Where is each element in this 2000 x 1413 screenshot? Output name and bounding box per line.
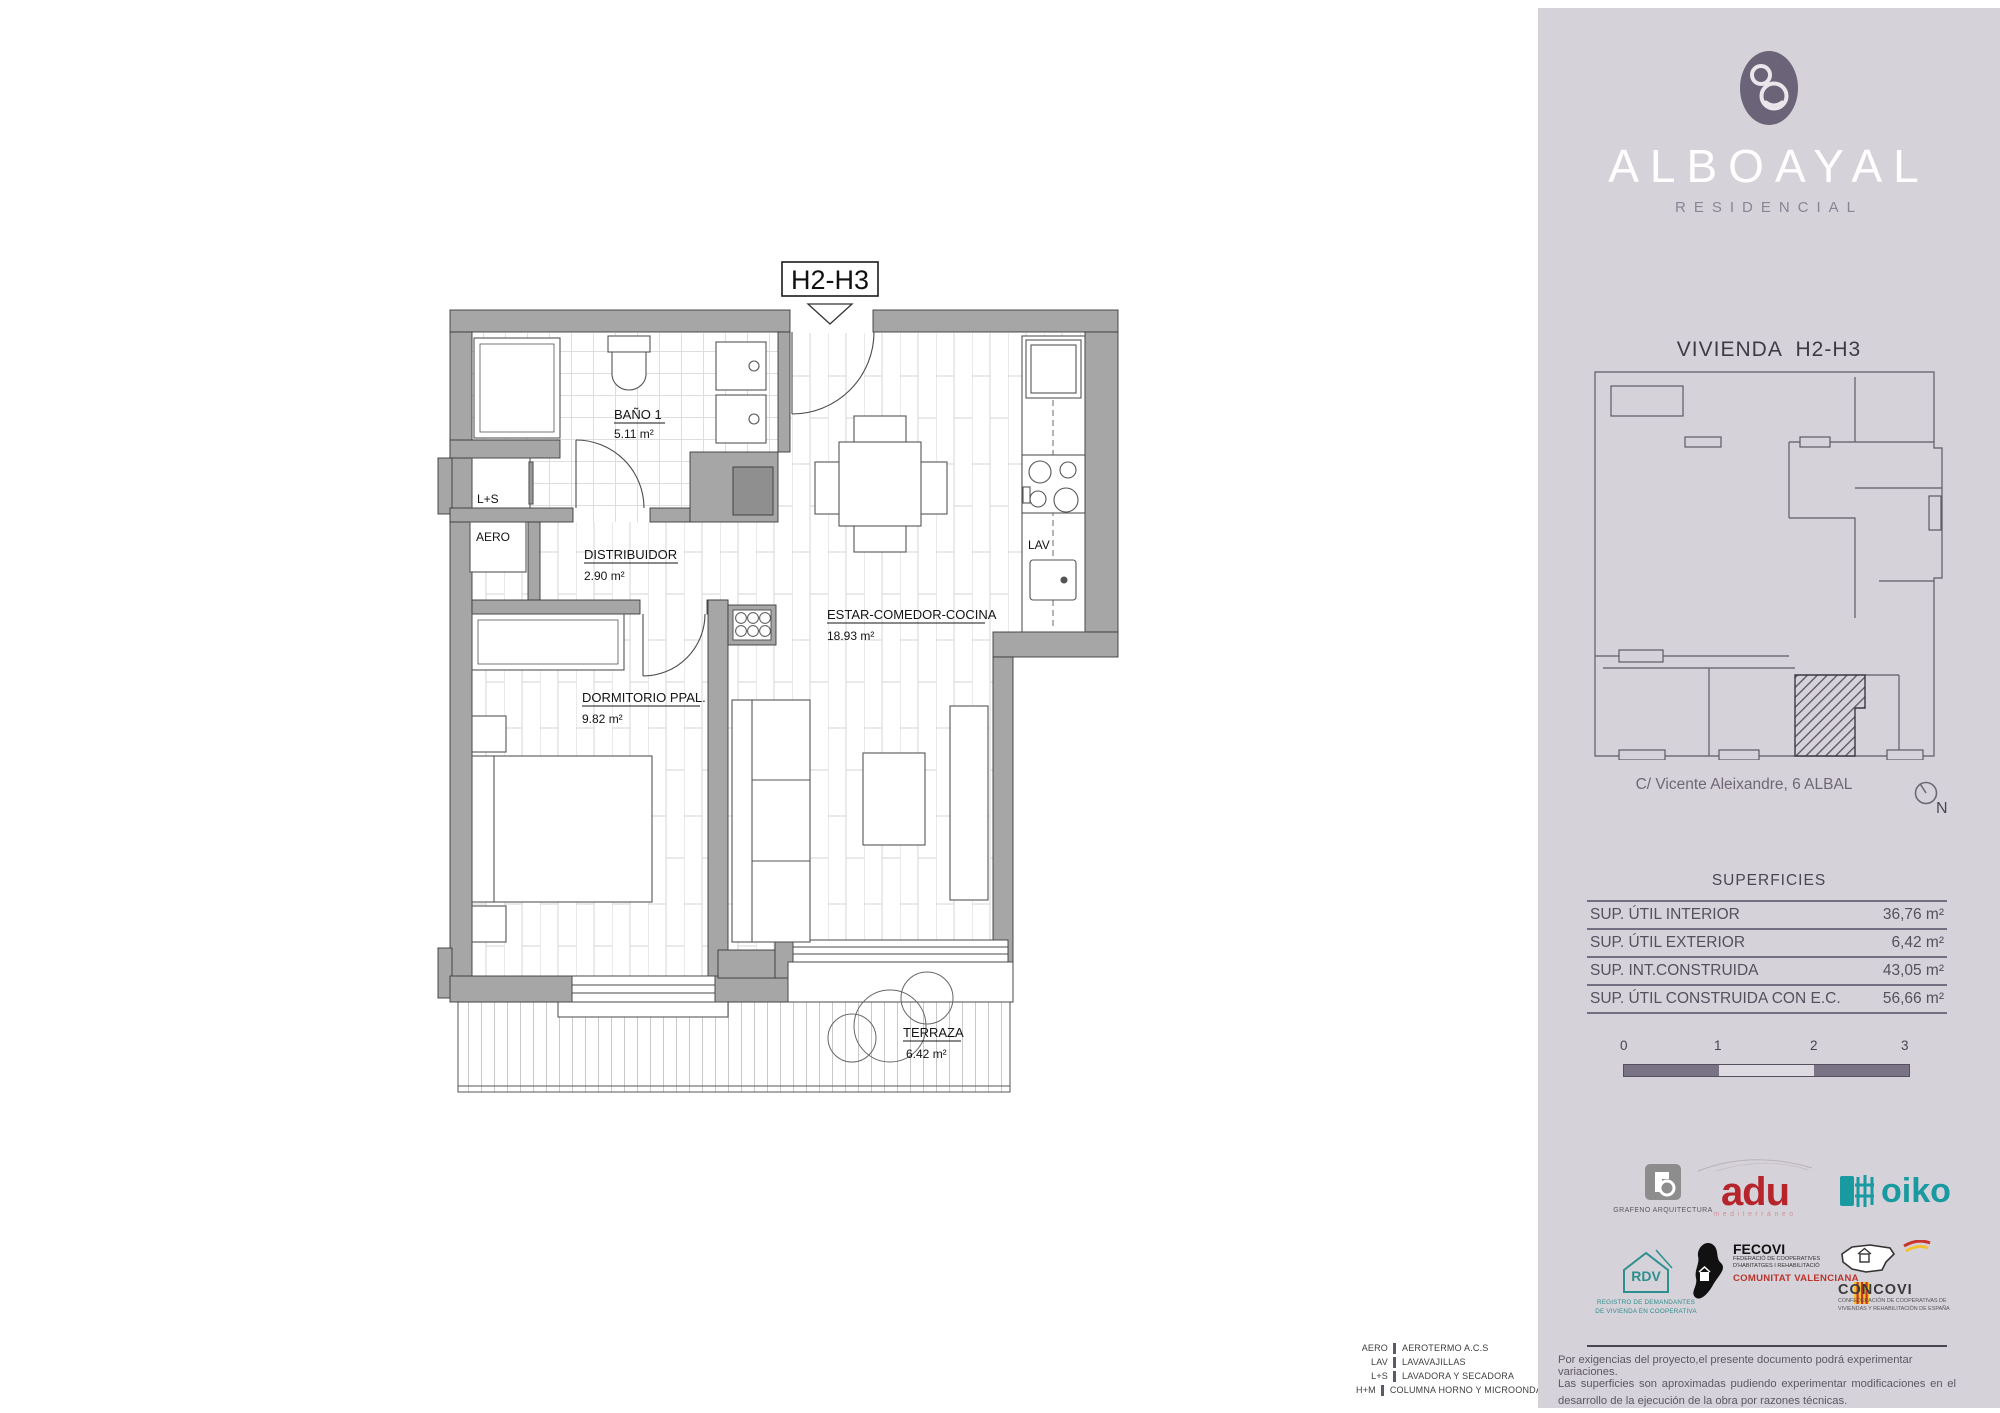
superficies-title: SUPERFICIES (1538, 872, 2000, 890)
legend-abbr: L+S (1356, 1371, 1388, 1381)
bedroom-window (572, 976, 715, 1002)
brand-name: ALBOAYAL (1538, 139, 2000, 193)
table-row: SUP. ÚTIL CONSTRUIDA CON E.C. 56,66 m² (1587, 984, 1947, 1014)
scale-tick: 2 (1810, 1038, 1818, 1053)
brand-tagline: RESIDENCIAL (1538, 199, 2000, 216)
superficies-table: SUP. ÚTIL INTERIOR 36,76 m² SUP. ÚTIL EX… (1587, 900, 1947, 1014)
fecovi-comunitat: COMUNITAT VALENCIANA (1733, 1273, 1851, 1284)
adu-subtitle: mediterráneo (1695, 1211, 1815, 1218)
concovi-caption: CONFEDERACIÓN DE COOPERATIVAS DE (1838, 1298, 1958, 1306)
concovi-map-icon (1838, 1240, 1934, 1276)
fecovi-wordmark: FECOVI (1733, 1242, 1851, 1256)
living-window (793, 940, 1008, 962)
scale-tick: 0 (1620, 1038, 1628, 1053)
room-name: TERRAZA (903, 1025, 964, 1040)
table-row: SUP. INT.CONSTRUIDA 43,05 m² (1587, 956, 1947, 984)
partner-logos-row2: RDV REGISTRO DE DEMANDANTES DE VIVIENDA … (1538, 1240, 2000, 1310)
compass-n-label: N (1936, 800, 1948, 818)
bed (472, 756, 652, 902)
room-name: BAÑO 1 (614, 407, 662, 422)
info-panel: ALBOAYAL RESIDENCIAL VIVIENDA H2-H3 (1538, 8, 2000, 1408)
fixture-label-aero: AERO (476, 530, 510, 544)
unit-heading: VIVIENDA H2-H3 (1538, 338, 2000, 362)
legend-divider (1393, 1371, 1396, 1382)
kitchen-sink (1030, 560, 1076, 600)
adu-logo: adu mediterráneo (1695, 1158, 1815, 1218)
chair (854, 524, 906, 552)
row-value: 43,05 m² (1883, 962, 1944, 980)
compass-north-indicator: N (1910, 778, 1958, 822)
disclaimer-line2: Las superficies son aproximadas pudiendo… (1558, 1376, 1956, 1410)
oiko-wordmark: oiko (1881, 1174, 1951, 1208)
entry-arrow-icon (808, 304, 852, 324)
shower (474, 338, 560, 438)
floorplan-sheet: H2-H3 BAÑO 1 5.11 m² DISTRIBUIDOR 2.90 m… (0, 0, 2000, 1413)
legend-desc: AEROTERMO A.C.S (1402, 1343, 1489, 1353)
oiko-logo: oiko (1838, 1172, 1951, 1210)
nightstand (472, 716, 506, 752)
table-row: SUP. ÚTIL INTERIOR 36,76 m² (1587, 900, 1947, 928)
adu-wordmark: adu (1695, 1177, 1815, 1208)
room-area: 2.90 m² (584, 569, 625, 583)
legend-desc: LAVAVAJILLAS (1402, 1357, 1466, 1367)
room-area: 6.42 m² (906, 1047, 947, 1061)
row-value: 36,76 m² (1883, 906, 1944, 924)
legend-desc: COLUMNA HORNO Y MICROONDAS (1390, 1385, 1548, 1395)
legend-abbr: LAV (1356, 1357, 1388, 1367)
legend-divider (1381, 1385, 1384, 1396)
room-area: 9.82 m² (582, 712, 623, 726)
fixture-label-lav: LAV (1028, 538, 1050, 552)
dining-table (839, 442, 921, 526)
hall-cabinet (728, 605, 776, 645)
scale-tick: 1 (1714, 1038, 1722, 1053)
legend-row: L+S LAVADORA Y SECADORA (1356, 1369, 1531, 1383)
brand-block: ALBOAYAL RESIDENCIAL (1538, 50, 2000, 216)
tv-cabinet (950, 706, 988, 900)
highlighted-unit (1795, 675, 1865, 756)
legend-desc: LAVADORA Y SECADORA (1402, 1371, 1514, 1381)
row-label: SUP. ÚTIL INTERIOR (1590, 906, 1740, 924)
legend-row: AERO AEROTERMO A.C.S (1356, 1341, 1531, 1355)
row-label: SUP. ÚTIL EXTERIOR (1590, 934, 1745, 952)
bedroom-window-sill (558, 1002, 728, 1017)
fecovi-caption: D'HABITATGES I REHABILITACIÓ (1733, 1263, 1851, 1270)
scale-tick: 3 (1901, 1038, 1909, 1053)
room-area: 18.93 m² (827, 629, 874, 643)
concovi-logo: CONCOVI CONFEDERACIÓN DE COOPERATIVAS DE… (1838, 1240, 1958, 1313)
fecovi-map-icon (1688, 1242, 1728, 1304)
wardrobe (472, 614, 624, 670)
row-value: 56,66 m² (1883, 990, 1944, 1008)
oiko-icon (1838, 1172, 1876, 1210)
alboayal-logo-icon (1739, 50, 1799, 126)
disclaimer-line1: Por exigencias del proyecto,el presente … (1558, 1354, 1958, 1378)
sofa (732, 700, 810, 942)
row-label: SUP. INT.CONSTRUIDA (1590, 962, 1759, 980)
unit-tag-label: H2-H3 (791, 265, 869, 295)
room-name: DISTRIBUIDOR (584, 547, 677, 562)
room-name: DORMITORIO PPAL. (582, 690, 706, 705)
chair (919, 462, 947, 514)
legend-divider (1393, 1357, 1396, 1368)
unit-tag: H2-H3 (782, 262, 878, 324)
room-area: 5.11 m² (614, 427, 654, 441)
chair (854, 416, 906, 444)
living-window-sill (788, 962, 1013, 1002)
scale-bar: 0 1 2 3 (1538, 1038, 2000, 1090)
floor-plan: H2-H3 BAÑO 1 5.11 m² DISTRIBUIDOR 2.90 m… (430, 250, 1130, 1110)
coffee-table (863, 753, 925, 845)
concovi-caption: VIVIENDAS Y REHABILITACIÓN DE ESPAÑA (1838, 1306, 1958, 1314)
rdv-text: RDV (1631, 1268, 1661, 1284)
key-plan (1589, 368, 1946, 760)
row-value: 6,42 m² (1891, 934, 1944, 952)
address-row: C/ Vicente Aleixandre, 6 ALBAL N (1538, 776, 2000, 794)
kitchen-counter (1022, 336, 1085, 632)
scale-bar-strip (1623, 1064, 1910, 1077)
grafeno-icon (1645, 1164, 1681, 1200)
legend-row: LAV LAVAVAJILLAS (1356, 1355, 1531, 1369)
legend-divider (1393, 1343, 1396, 1354)
toilet (608, 336, 650, 352)
row-label: SUP. ÚTIL CONSTRUIDA CON E.C. (1590, 990, 1841, 1008)
concovi-wordmark: CONCOVI (1838, 1282, 1958, 1298)
rdv-house-icon: RDV (1618, 1248, 1674, 1294)
footer-divider (1587, 1345, 1947, 1347)
legend-abbr: H+M (1356, 1385, 1376, 1395)
fixture-label-ls: L+S (477, 492, 499, 506)
partner-logos-row1: GRAFENO ARQUITECTURA adu mediterráneo (1538, 1158, 2000, 1224)
appliance-legend: AERO AEROTERMO A.C.S LAV LAVAVAJILLAS L+… (1356, 1341, 1531, 1397)
legend-row: H+M COLUMNA HORNO Y MICROONDAS (1356, 1383, 1531, 1397)
room-name: ESTAR-COMEDOR-COCINA (827, 607, 997, 622)
legend-abbr: AERO (1356, 1343, 1388, 1353)
nightstand (472, 906, 506, 942)
table-row: SUP. ÚTIL EXTERIOR 6,42 m² (1587, 928, 1947, 956)
